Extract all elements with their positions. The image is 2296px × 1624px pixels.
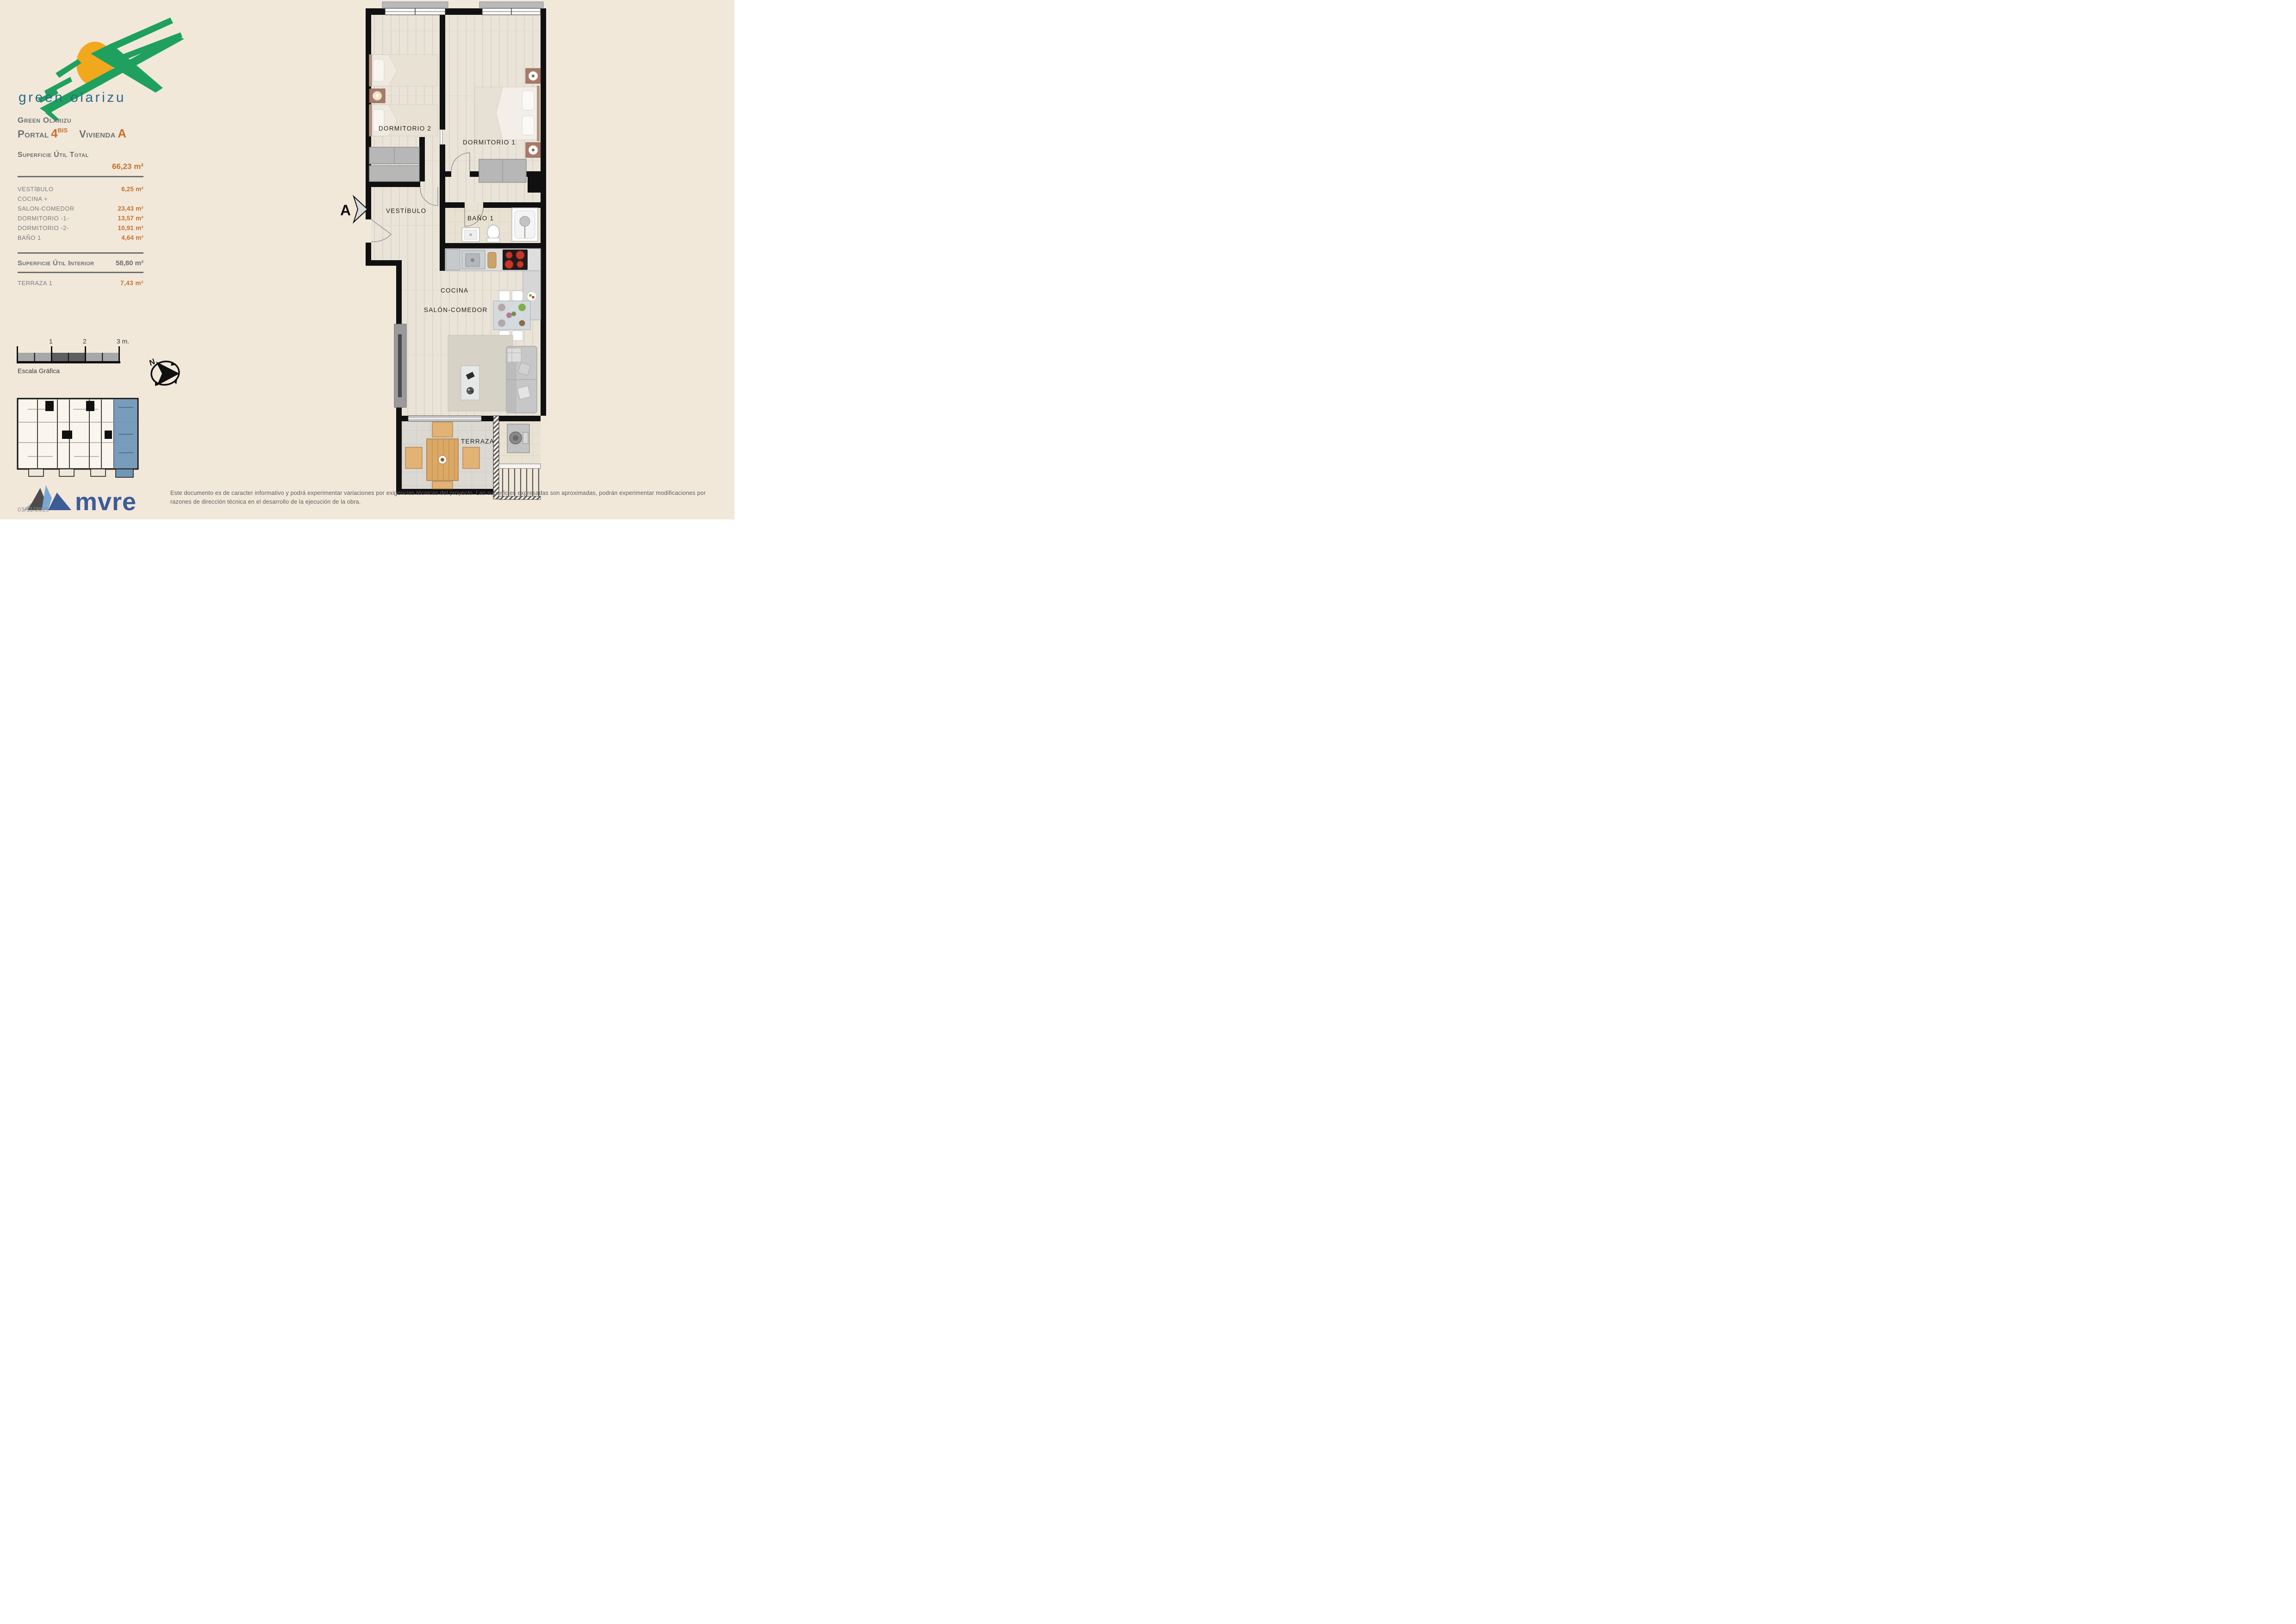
area-row: DORMITORIO -1- 13,57 m²	[18, 215, 143, 222]
label-salon: SALÓN-COMEDOR	[424, 306, 488, 313]
area-row: VESTÍBULO 6,25 m²	[18, 186, 143, 193]
terrace-area-row: TERRAZA 1 7,43 m²	[18, 280, 143, 287]
area-row: DORMITORIO -2- 10,91 m²	[18, 225, 143, 231]
area-row-label: DORMITORIO -2-	[18, 225, 69, 231]
section-marker-label: A	[340, 202, 351, 219]
label-vestibulo: VESTÍBULO	[386, 207, 426, 214]
project-title: Green Olarizu	[18, 116, 143, 125]
hatched-wall	[493, 416, 499, 499]
terrace-area-label: TERRAZA 1	[18, 280, 52, 287]
compass: N	[148, 357, 181, 387]
area-row-value: 10,91 m²	[118, 225, 143, 231]
interior-area-row: Superficie Útil Interior 58,80 m²	[18, 259, 143, 267]
unit-label: Vivienda	[79, 128, 116, 140]
scale-tick-1: 1	[49, 337, 53, 345]
area-row-value: 4,64 m²	[121, 234, 143, 241]
divider	[18, 252, 143, 254]
washing-machine-icon	[507, 424, 529, 453]
portal-sup: BIS	[58, 127, 68, 134]
shower-head-icon	[520, 216, 530, 226]
area-row-label: VESTÍBULO	[18, 186, 53, 193]
label-bano1: BAÑO 1	[467, 215, 494, 222]
fruit-plate-icon	[527, 292, 536, 301]
area-row: BAÑO 1 4,64 m²	[18, 234, 143, 241]
info-panel: Green Olarizu Portal 4BIS Vivienda A Sup…	[18, 116, 143, 287]
document-date: 03/11/2025	[18, 506, 49, 513]
total-area-label: Superficie Útil Total	[18, 151, 143, 159]
window-dormitorio2	[382, 2, 448, 15]
total-area-value: 66,23 m²	[18, 162, 143, 171]
interior-area-value: 58,80 m²	[116, 259, 143, 267]
area-row-value: 23,43 m²	[118, 205, 143, 212]
portal-number: 4	[51, 126, 57, 140]
brand-logo: green olarizu	[19, 18, 184, 121]
area-row-label: SALON-COMEDOR	[18, 205, 75, 212]
floor-plan: A DORMITORIO 2 DORMITORIO 1 VESTÍBULO BA…	[340, 2, 546, 500]
area-row-label: DORMITORIO -1-	[18, 215, 69, 222]
disclaimer-text: Este documento es de caracter informativ…	[170, 489, 726, 506]
scale-caption: Escala Gráfica	[18, 367, 60, 375]
cutting-board-icon	[488, 252, 496, 268]
unit-letter: A	[118, 126, 126, 140]
scale-tick-2: 2	[83, 337, 87, 345]
unit-title: Portal 4BIS Vivienda A	[18, 126, 143, 141]
terrace-area-value: 7,43 m²	[120, 280, 143, 287]
coffee-table	[461, 366, 479, 400]
logo-wordmark: green olarizu	[19, 90, 126, 105]
rug	[448, 335, 513, 411]
section-marker: A	[340, 196, 367, 222]
area-row-label: BAÑO 1	[18, 234, 41, 241]
scale-bar: 1 2 3 m. Escala Gráfica	[17, 337, 129, 375]
area-row: COCINA +	[18, 195, 143, 202]
key-plan	[18, 399, 138, 477]
hob-icon	[503, 250, 528, 270]
label-cocina: COCINA	[441, 287, 468, 294]
label-dormitorio1: DORMITORIO 1	[463, 139, 516, 146]
area-table: VESTÍBULO 6,25 m² COCINA + SALON-COMEDOR…	[18, 186, 143, 241]
area-row-value: 6,25 m²	[121, 186, 143, 193]
label-terraza: TERRAZA	[461, 438, 494, 445]
area-row-value: 13,57 m²	[118, 215, 143, 222]
key-plan-highlight	[114, 400, 137, 468]
interior-area-label: Superficie Útil Interior	[18, 259, 94, 267]
toilet-icon	[487, 225, 500, 242]
plan-sheet: green olarizu 1 2 3 m. Escala Gráfica	[0, 0, 734, 519]
area-row-label: COCINA +	[18, 195, 48, 202]
divider	[18, 272, 143, 273]
area-row: SALON-COMEDOR 23,43 m²	[18, 205, 143, 212]
label-dormitorio2: DORMITORIO 2	[379, 125, 431, 132]
section-arrow-icon	[354, 196, 367, 222]
mvre-wordmark: mvre	[75, 488, 137, 516]
scale-tick-3: 3 m.	[117, 337, 129, 345]
kitchen-sink-icon	[462, 250, 485, 269]
window-dormitorio1	[479, 2, 543, 15]
sofa	[506, 346, 537, 413]
portal-label: Portal	[18, 128, 49, 140]
divider	[18, 176, 143, 177]
